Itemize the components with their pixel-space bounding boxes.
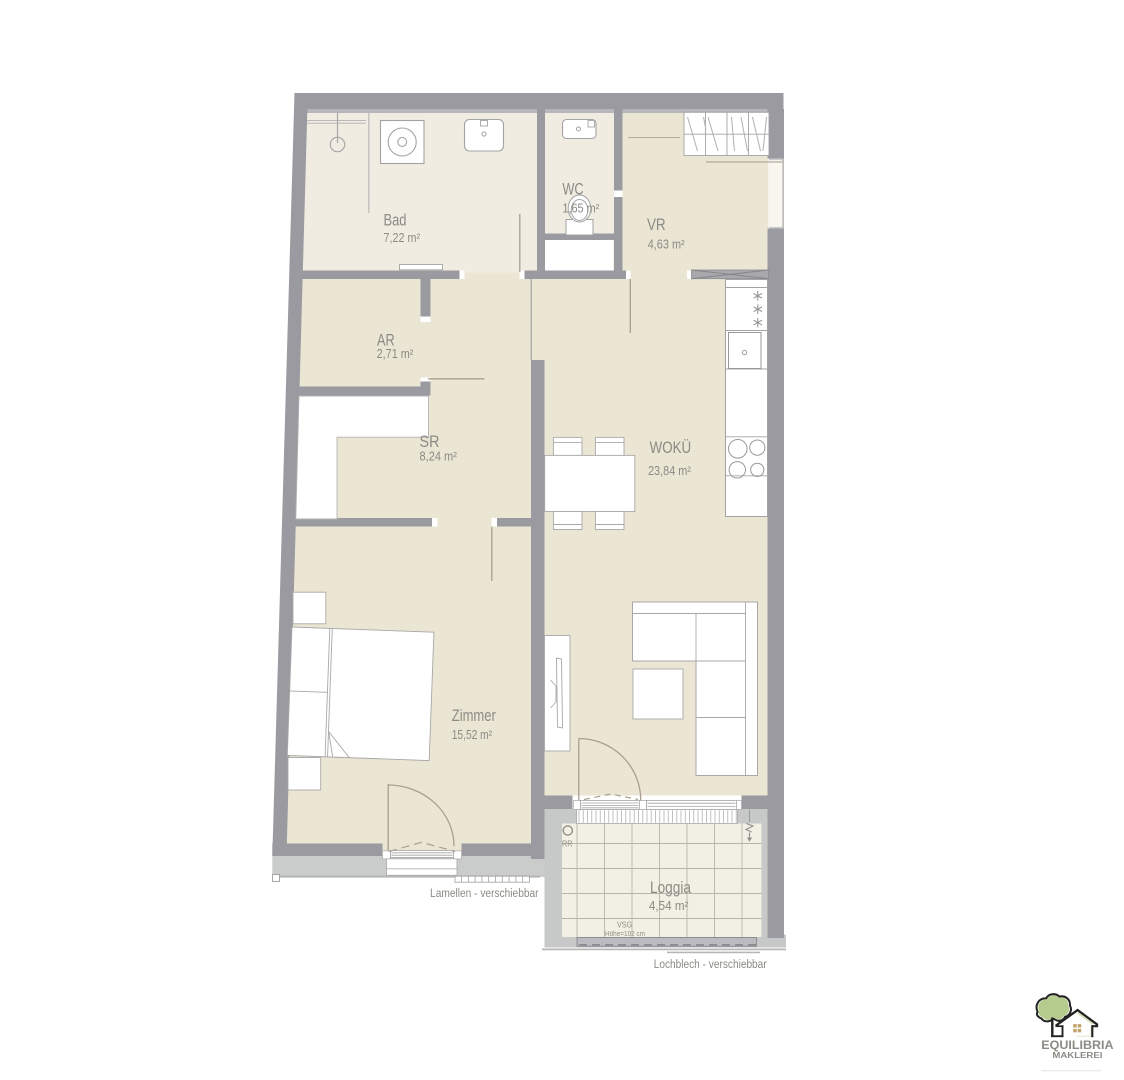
svg-text:Höhe=102 cm: Höhe=102 cm [605, 929, 645, 938]
svg-text:Loggia: Loggia [650, 879, 692, 897]
svg-text:8,24 m²: 8,24 m² [420, 449, 458, 464]
svg-text:4,54 m²: 4,54 m² [649, 898, 689, 913]
svg-text:2,71 m²: 2,71 m² [377, 346, 414, 361]
svg-text:4,63 m²: 4,63 m² [648, 237, 686, 252]
svg-text:Lochblech - verschiebbar: Lochblech - verschiebbar [654, 959, 767, 971]
svg-text:23,84 m²: 23,84 m² [648, 463, 692, 478]
svg-text:15,52 m²: 15,52 m² [452, 727, 493, 742]
svg-text:Zimmer: Zimmer [452, 707, 497, 725]
svg-text:Lamellen - verschiebbar: Lamellen - verschiebbar [430, 888, 539, 900]
svg-text:1,65 m²: 1,65 m² [562, 201, 600, 216]
svg-text:7,22 m²: 7,22 m² [384, 230, 421, 245]
svg-text:WC: WC [562, 180, 583, 198]
svg-text:MAKLEREI: MAKLEREI [1052, 1051, 1102, 1060]
svg-text:VR: VR [647, 216, 666, 234]
svg-text:RR: RR [562, 839, 573, 849]
svg-text:WOKÜ: WOKÜ [650, 439, 692, 457]
svg-text:Bad: Bad [383, 212, 406, 230]
